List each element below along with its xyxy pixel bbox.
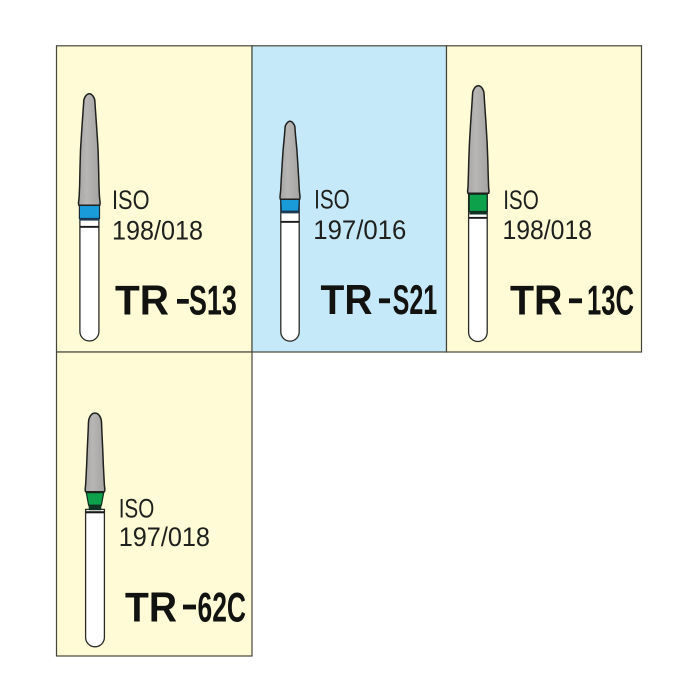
svg-text:13C: 13C	[587, 276, 634, 323]
svg-text:62C: 62C	[198, 583, 247, 630]
svg-text:197/016: 197/016	[313, 215, 406, 245]
svg-text:ISO: ISO	[503, 185, 539, 215]
svg-text:TR: TR	[125, 583, 177, 630]
svg-text:198/018: 198/018	[503, 215, 593, 245]
svg-text:TR: TR	[115, 276, 169, 323]
svg-text:ISO: ISO	[314, 185, 350, 215]
svg-text:S21: S21	[393, 276, 438, 323]
svg-text:198/018: 198/018	[112, 216, 203, 246]
svg-text:TR: TR	[321, 276, 373, 323]
svg-text:S13: S13	[189, 276, 237, 323]
svg-text:TR: TR	[510, 276, 563, 323]
svg-text:ISO: ISO	[112, 185, 150, 215]
svg-text:ISO: ISO	[119, 493, 155, 523]
svg-text:197/018: 197/018	[119, 522, 210, 552]
